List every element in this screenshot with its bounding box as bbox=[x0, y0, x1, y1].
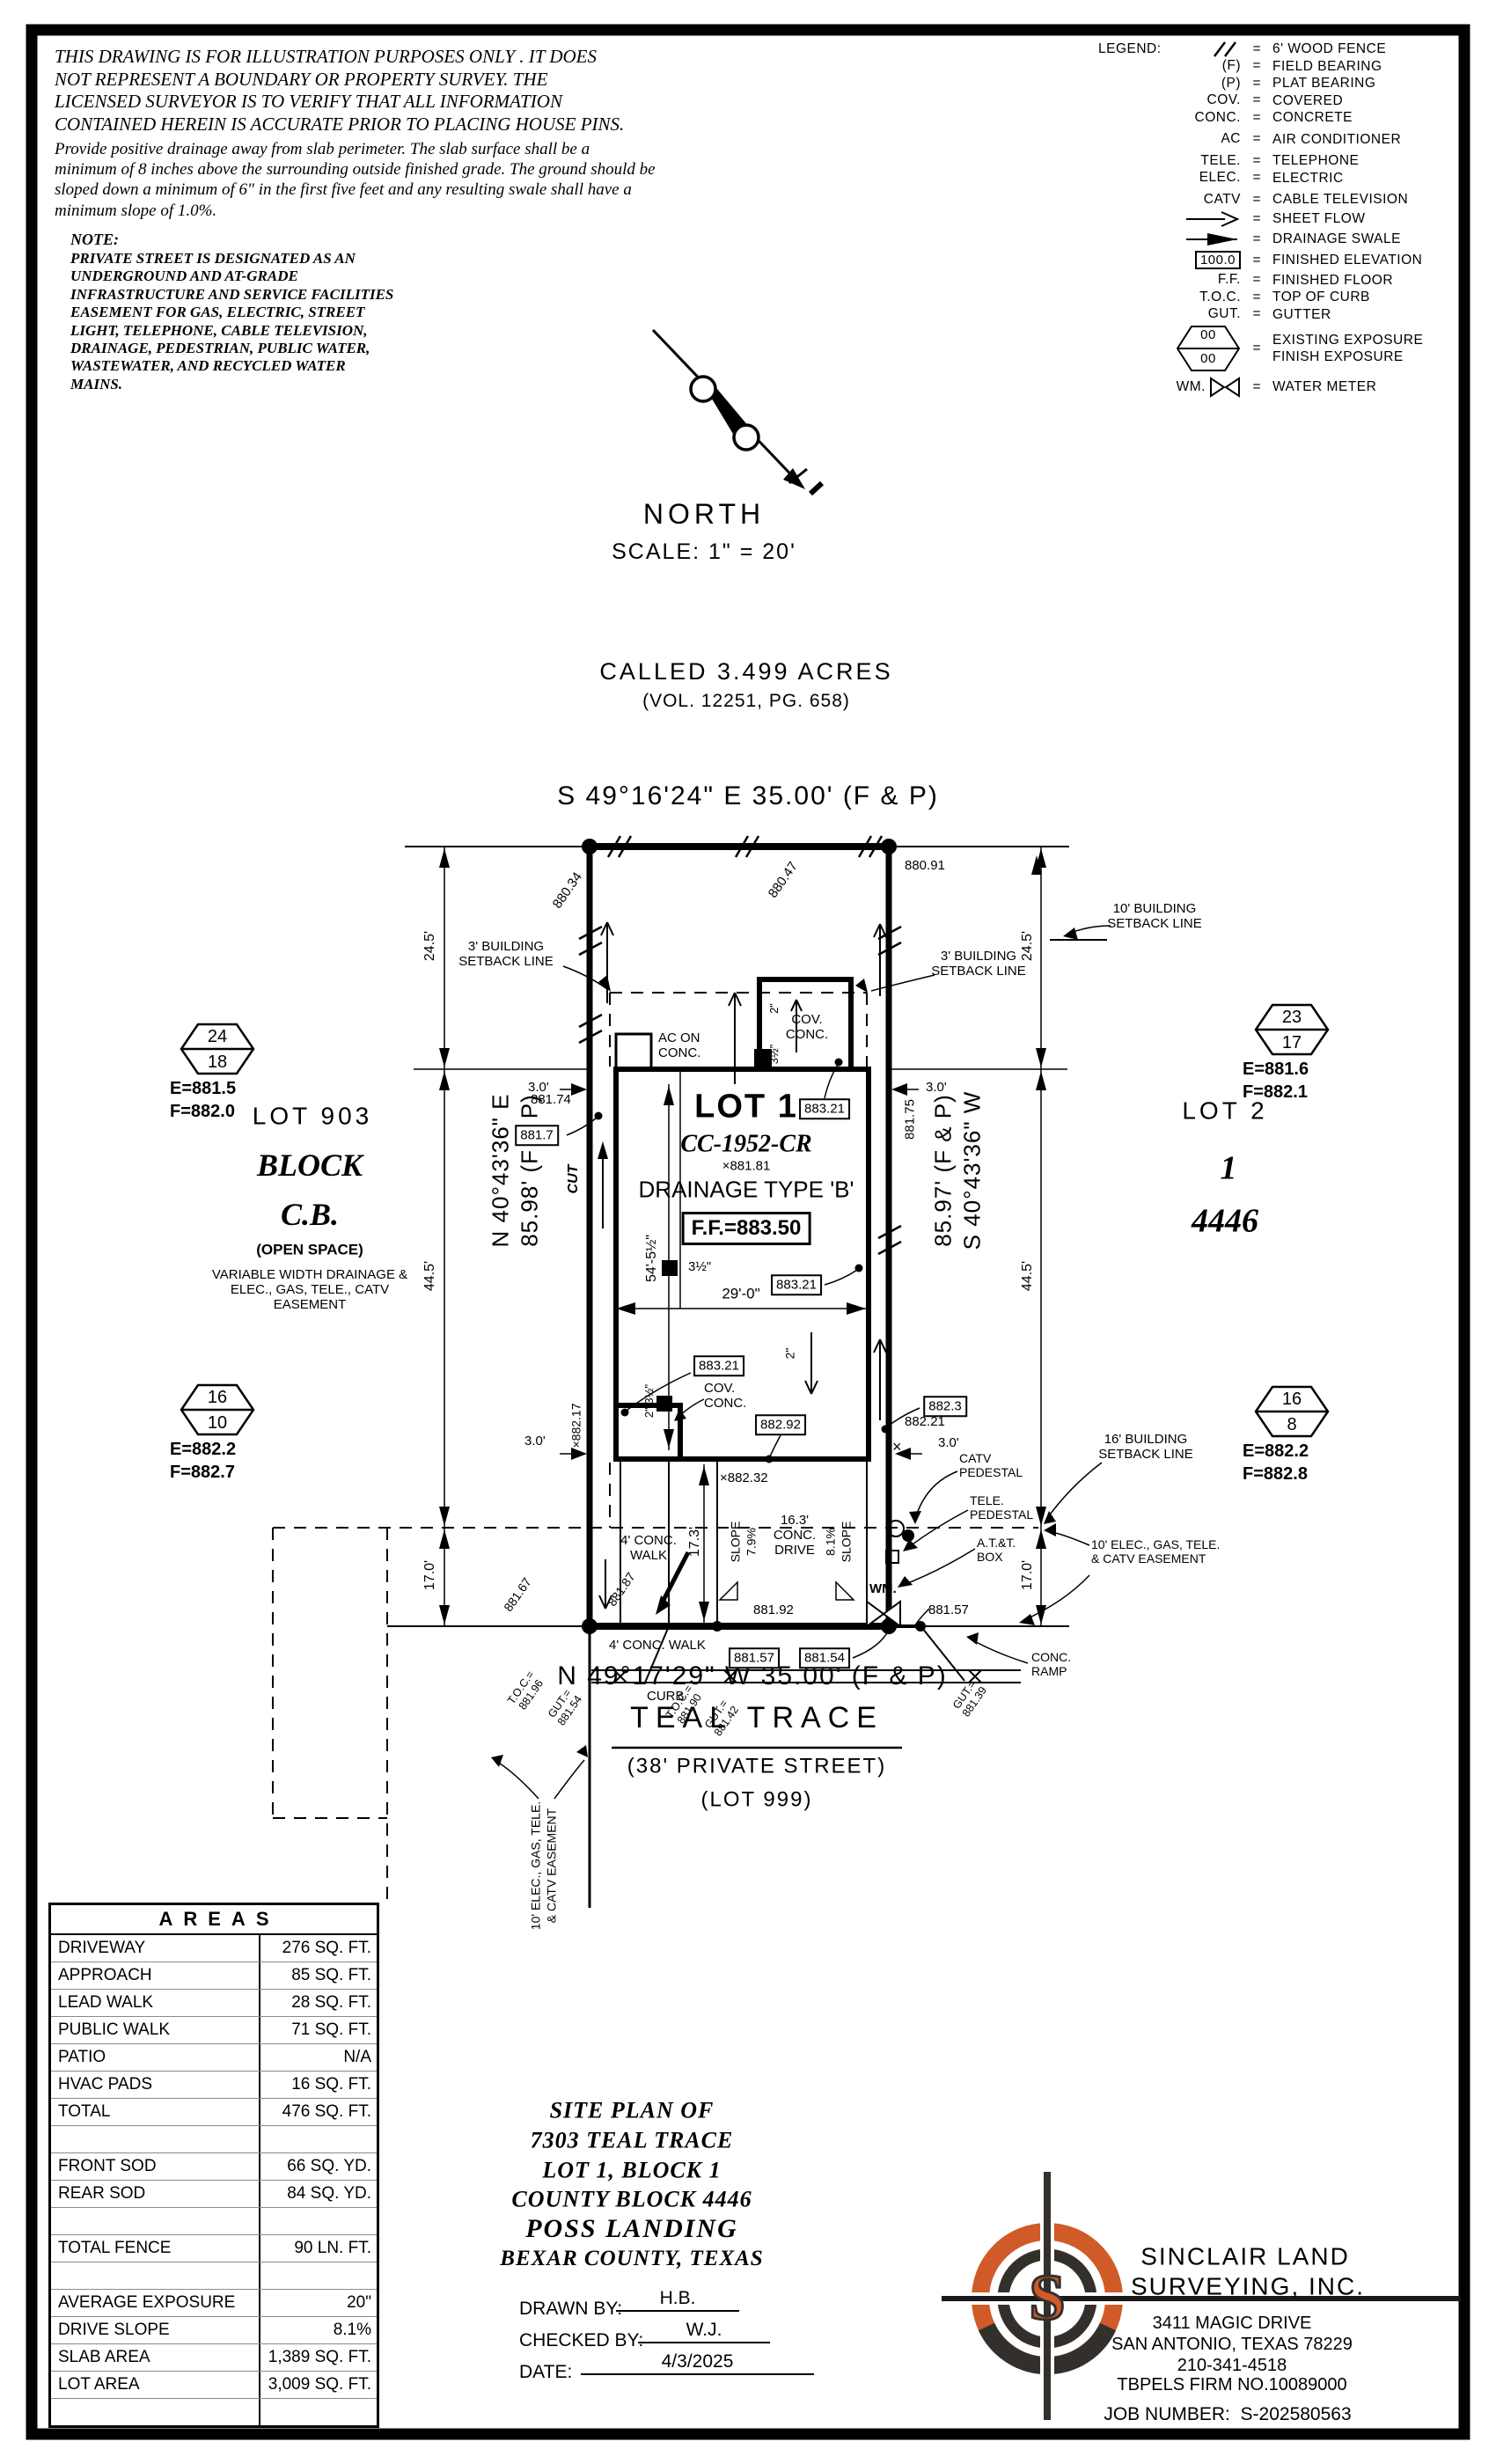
legend-sym: (P) bbox=[1098, 76, 1241, 92]
elev-881-92: 881.92 bbox=[753, 1603, 794, 1618]
legend-desc: ELECTRIC bbox=[1272, 170, 1471, 187]
area-label: HVAC PADS bbox=[51, 2072, 259, 2098]
north-arrow-icon bbox=[653, 330, 822, 494]
setback-10ft-label: 10' BUILDING SETBACK LINE bbox=[1107, 902, 1202, 932]
area-label bbox=[51, 2262, 259, 2289]
marker-nw-e: E=881.5 bbox=[170, 1079, 236, 1098]
dim-24-5-left: 24.5' bbox=[422, 931, 439, 961]
x-spot-mark: × bbox=[892, 1438, 902, 1456]
drainage-swale-arrow-icon bbox=[1186, 231, 1241, 248]
exposure-finish-value: 00 bbox=[1176, 351, 1241, 366]
legend-sym: CONC. bbox=[1098, 110, 1241, 126]
bearing-east-angle: S 40°43'36" W bbox=[957, 1091, 986, 1250]
drainage-note-paragraph: Provide positive drainage away from slab… bbox=[55, 139, 656, 221]
legend-row: LEGEND: = 6' WOOD FENCE bbox=[1098, 40, 1471, 58]
bearing-west-distance: 85.98' (F & P) bbox=[515, 1094, 544, 1248]
elev-881-57-right: 881.57 bbox=[928, 1603, 969, 1618]
bearing-east-line: 85.97' (F & P)S 40°43'36" W bbox=[929, 1091, 986, 1250]
conc-ramp-label: CONC. RAMP bbox=[1031, 1651, 1071, 1678]
area-value: 71 SQ. FT. bbox=[259, 2017, 377, 2043]
table-row: HVAC PADS 16 SQ. FT. bbox=[51, 2071, 377, 2098]
area-label: FRONT SOD bbox=[51, 2153, 259, 2180]
legend-desc: FINISHED FLOOR bbox=[1272, 272, 1471, 289]
job-number: JOB NUMBER: S-202580563 bbox=[1104, 2404, 1351, 2425]
areas-table: AREAS DRIVEWAY 276 SQ. FT. APPROACH 85 S… bbox=[48, 1903, 379, 2428]
area-label: SLAB AREA bbox=[51, 2344, 259, 2371]
scale-label: SCALE: 1" = 20' bbox=[612, 539, 796, 564]
area-value bbox=[259, 2399, 377, 2425]
area-label: DRIVE SLOPE bbox=[51, 2317, 259, 2343]
finished-elevation-box-icon: 100.0 bbox=[1195, 251, 1241, 269]
area-label: DRIVEWAY bbox=[51, 1935, 259, 1962]
bearing-east-distance: 85.97' (F & P) bbox=[929, 1091, 958, 1250]
legend-eq: = bbox=[1241, 92, 1272, 108]
firm-phone: 210-341-4518 bbox=[1177, 2356, 1287, 2375]
areas-table-title: AREAS bbox=[51, 1905, 377, 1935]
marker-sw-e: E=882.2 bbox=[170, 1440, 236, 1459]
lot-1-label: LOT 1 bbox=[694, 1089, 798, 1126]
table-row bbox=[51, 2262, 377, 2289]
legend-eq: = bbox=[1241, 58, 1272, 74]
setback-3ft-left-label: 3' BUILD​ING SETBACK LINE bbox=[458, 940, 554, 970]
wood-fence-icon bbox=[1206, 40, 1241, 58]
title-line-3: LOT 1, BLOCK 1 bbox=[542, 2157, 721, 2182]
easement-bottom-label: 10' ELEC., GAS, TELE. & CATV EASEMENT bbox=[529, 1801, 560, 1930]
elev-box-883-21-a: 883.21 bbox=[799, 1098, 850, 1119]
setback-3ft-right-label: 3' BUILDING SETBACK LINE bbox=[931, 950, 1026, 979]
marker-ne-finish: 17 bbox=[1282, 1033, 1302, 1052]
area-label bbox=[51, 2399, 259, 2425]
legend-desc: EXISTING EXPOSURE FINISH EXPOSURE bbox=[1272, 332, 1471, 366]
elev-881-75: 881.75 bbox=[903, 1099, 920, 1140]
table-row bbox=[51, 2207, 377, 2234]
bearing-north-line: S 49°16'24" E 35.00' (F & P) bbox=[557, 781, 939, 811]
elev-881-74: 881.74 bbox=[531, 1093, 571, 1108]
area-value: 16 SQ. FT. bbox=[259, 2072, 377, 2098]
covered-concrete-bottom-label: COV. CONC. bbox=[704, 1382, 746, 1412]
table-row: PUBLIC WALK 71 SQ. FT. bbox=[51, 2016, 377, 2043]
covered-concrete-top-label: COV. CONC. bbox=[786, 1013, 828, 1043]
slope-left-label: SLOPE 7.9% bbox=[729, 1522, 759, 1563]
legend-eq: = bbox=[1241, 379, 1272, 395]
att-box-label: A.T.&T. BOX bbox=[977, 1536, 1016, 1564]
disclaimer-paragraph: THIS DRAWING IS FOR ILLUSTRATION PURPOSE… bbox=[55, 46, 624, 136]
area-value: 28 SQ. FT. bbox=[259, 1990, 377, 2016]
title-line-1: SITE PLAN OF bbox=[550, 2097, 715, 2123]
dim-44-5-right: 44.5' bbox=[1019, 1261, 1037, 1291]
firm-name-line-1: SINCLAIR LAND bbox=[1140, 2242, 1350, 2270]
area-value: N/A bbox=[259, 2044, 377, 2071]
firm-address-line-2: SAN ANTONIO, TEXAS 78229 bbox=[1111, 2335, 1353, 2354]
title-line-2: 7303 TEAL TRACE bbox=[531, 2127, 734, 2152]
dim-17-0-right: 17.0' bbox=[1019, 1560, 1037, 1590]
table-row: FRONT SOD 66 SQ. YD. bbox=[51, 2152, 377, 2180]
area-value: 8.1% bbox=[259, 2317, 377, 2343]
legend-eq: = bbox=[1241, 192, 1272, 208]
flow-arrows bbox=[599, 922, 886, 1609]
legend-sym: WM. bbox=[1177, 379, 1206, 395]
dim-2in-mid: 2" bbox=[782, 1348, 798, 1360]
legend-eq: = bbox=[1241, 170, 1272, 186]
subdivision-name: POSS LANDING bbox=[525, 2214, 738, 2244]
west-lot-label: LOT 903 bbox=[253, 1102, 372, 1129]
slope-right-label: 8.1% SLOPE bbox=[824, 1522, 854, 1563]
private-street-note: PRIVATE STREET IS DESIGNATED AS AN UNDER… bbox=[70, 250, 393, 393]
spot-elev-882-17: ×882.17 bbox=[568, 1404, 584, 1448]
legend-sym: TELE. bbox=[1098, 153, 1241, 169]
spot-elev-881-81: ×881.81 bbox=[722, 1160, 771, 1175]
legend-desc: 6' WOOD FENCE bbox=[1272, 40, 1471, 57]
west-block-cb-label: C.B. bbox=[281, 1197, 339, 1232]
plan-number-label: CC-1952-CR bbox=[680, 1130, 811, 1157]
cut-label: CUT bbox=[565, 1165, 583, 1194]
logo-letter: S bbox=[1029, 2262, 1065, 2336]
area-value bbox=[259, 2208, 377, 2234]
finished-floor-label: F.F.=883.50 bbox=[682, 1212, 811, 1245]
date-label: DATE: bbox=[519, 2362, 572, 2383]
legend-sym: F.F. bbox=[1098, 272, 1241, 288]
area-label: LOT AREA bbox=[51, 2372, 259, 2398]
bearing-west-angle: N 40°43'36" E bbox=[487, 1094, 516, 1248]
elev-box-881-57: 881.57 bbox=[729, 1647, 780, 1668]
dim-3-0-ne: 3.0' bbox=[926, 1081, 947, 1096]
east-block-number: 1 bbox=[1221, 1150, 1237, 1188]
legend-sym: COV. bbox=[1098, 92, 1241, 108]
legend-eq: = bbox=[1241, 253, 1272, 268]
date-value: 4/3/2025 bbox=[581, 2351, 814, 2375]
table-row: DRIVE SLOPE 8.1% bbox=[51, 2316, 377, 2343]
west-easement-label: VARIABLE WIDTH DRAINAGE & ELEC., GAS, TE… bbox=[212, 1268, 407, 1312]
water-meter-bowtie-icon bbox=[1209, 377, 1241, 398]
dim-17-0-left: 17.0' bbox=[422, 1560, 439, 1590]
marker-se-finish: 8 bbox=[1287, 1415, 1296, 1434]
east-county-block: 4446 bbox=[1192, 1203, 1258, 1241]
elev-880-91: 880.91 bbox=[905, 859, 945, 874]
area-label: REAR SOD bbox=[51, 2181, 259, 2207]
legend-desc: AIR CONDITIONER bbox=[1272, 131, 1471, 148]
area-value: 85 SQ. FT. bbox=[259, 1962, 377, 1989]
dim-44-5-left: 44.5' bbox=[422, 1261, 439, 1291]
checked-by-value: W.J. bbox=[638, 2320, 770, 2343]
tele-pedestal-label: TELE. PEDESTAL bbox=[970, 1494, 1033, 1522]
legend-desc: DRAINAGE SWALE bbox=[1272, 231, 1471, 247]
exposure-hexagon-icon: 00 00 bbox=[1176, 325, 1241, 372]
county-state: BEXAR COUNTY, TEXAS bbox=[500, 2247, 763, 2271]
elev-box-883-21-c: 883.21 bbox=[693, 1355, 744, 1376]
area-label: PUBLIC WALK bbox=[51, 2017, 259, 2043]
area-label: AVERAGE EXPOSURE bbox=[51, 2290, 259, 2316]
area-label: APPROACH bbox=[51, 1962, 259, 1989]
legend-desc: TOP OF CURB bbox=[1272, 289, 1471, 305]
area-value: 276 SQ. FT. bbox=[259, 1935, 377, 1962]
table-row: APPROACH 85 SQ. FT. bbox=[51, 1962, 377, 1989]
legend-sym: ELEC. bbox=[1098, 170, 1241, 186]
lead-walk-label: 4' CONC. WALK bbox=[620, 1534, 677, 1564]
legend-eq: = bbox=[1241, 131, 1272, 147]
street-type: (38' PRIVATE STREET) bbox=[627, 1756, 886, 1779]
area-label: PATIO bbox=[51, 2044, 259, 2071]
spot-elev-882-32: ×882.32 bbox=[720, 1471, 768, 1486]
street-name: TEAL TRACE bbox=[630, 1701, 884, 1734]
marker-sw-existing: 16 bbox=[208, 1388, 227, 1407]
sheet-flow-arrow-icon bbox=[1186, 209, 1241, 229]
marker-se-f: F=882.8 bbox=[1243, 1464, 1308, 1484]
setback-16ft-label: 16' BUILDING SETBACK LINE bbox=[1098, 1433, 1193, 1463]
area-value: 90 LN. FT. bbox=[259, 2235, 377, 2262]
area-value: 66 SQ. YD. bbox=[259, 2153, 377, 2180]
area-label: TOTAL bbox=[51, 2099, 259, 2125]
flow-arrowhead bbox=[598, 1141, 608, 1159]
table-row: PATIO N/A bbox=[51, 2043, 377, 2071]
legend-sym: AC bbox=[1098, 131, 1241, 147]
drawn-by-label: DRAWN BY: bbox=[519, 2299, 622, 2320]
dim-3-0-sw: 3.0' bbox=[524, 1434, 546, 1449]
legend-eq: = bbox=[1241, 290, 1272, 305]
legend-eq: = bbox=[1241, 211, 1272, 227]
areas-table-body: DRIVEWAY 276 SQ. FT. APPROACH 85 SQ. FT.… bbox=[51, 1935, 377, 2425]
area-label bbox=[51, 2126, 259, 2152]
elev-box-881-54: 881.54 bbox=[799, 1647, 850, 1668]
open-space-label: (OPEN SPACE) bbox=[256, 1241, 363, 1258]
area-value bbox=[259, 2126, 377, 2152]
north-label: NORTH bbox=[643, 499, 765, 531]
water-meter-label: WM. bbox=[869, 1582, 897, 1597]
legend-eq: = bbox=[1241, 110, 1272, 126]
easement-right-label: 10' ELEC., GAS, TELE. & CATV EASEMENT bbox=[1091, 1538, 1220, 1566]
elev-box-881-7: 881.7 bbox=[515, 1125, 559, 1146]
legend-desc: FIELD BEARING bbox=[1272, 58, 1471, 75]
dim-17-3: 17.3' bbox=[686, 1527, 704, 1557]
legend-eq: = bbox=[1241, 272, 1272, 288]
parent-tract-volume: (VOL. 12251, PG. 658) bbox=[642, 691, 850, 712]
area-label bbox=[51, 2208, 259, 2234]
table-row: SLAB AREA 1,389 SQ. FT. bbox=[51, 2343, 377, 2371]
table-row: REAR SOD 84 SQ. YD. bbox=[51, 2180, 377, 2207]
dim-2in-porch: 2" bbox=[767, 1003, 781, 1014]
legend-sym: GUT. bbox=[1098, 306, 1241, 322]
area-value: 1,389 SQ. FT. bbox=[259, 2344, 377, 2371]
dim-54-5: 54'-5½" bbox=[643, 1235, 661, 1282]
west-block-label: BLOCK bbox=[257, 1148, 363, 1183]
table-row: LOT AREA 3,009 SQ. FT. bbox=[51, 2371, 377, 2398]
table-row: AVERAGE EXPOSURE 20" bbox=[51, 2289, 377, 2316]
table-row: TOTAL 476 SQ. FT. bbox=[51, 2098, 377, 2125]
marker-ne-e: E=881.6 bbox=[1243, 1060, 1309, 1079]
dim-2in-3h-sw: 2" 3½" bbox=[642, 1384, 656, 1418]
dim-3h-porch: 3½" bbox=[767, 1045, 781, 1065]
catv-pedestal-label: CATV PEDESTAL bbox=[959, 1452, 1023, 1479]
firm-name-line-2: SURVEYING, INC. bbox=[1131, 2272, 1365, 2299]
marker-sw-finish: 10 bbox=[208, 1413, 227, 1433]
legend-eq: = bbox=[1241, 76, 1272, 92]
legend-desc: TELEPHONE bbox=[1272, 152, 1471, 169]
table-row: LEAD WALK 28 SQ. FT. bbox=[51, 1989, 377, 2016]
dim-29-0: 29'-0" bbox=[722, 1285, 759, 1302]
legend-desc: GUTTER bbox=[1272, 306, 1471, 323]
bearing-west-line: N 40°43'36" E85.98' (F & P) bbox=[487, 1094, 544, 1248]
legend-desc: CABLE TELEVISION bbox=[1272, 191, 1471, 208]
legend-eq: = bbox=[1241, 153, 1272, 169]
legend-desc: PLAT BEARING bbox=[1272, 75, 1471, 92]
table-row bbox=[51, 2398, 377, 2425]
legend-desc: SHEET FLOW bbox=[1272, 210, 1471, 227]
table-row bbox=[51, 2125, 377, 2152]
area-value: 84 SQ. YD. bbox=[259, 2181, 377, 2207]
marker-ne-f: F=882.1 bbox=[1243, 1082, 1308, 1102]
legend-eq: = bbox=[1241, 341, 1272, 356]
table-row: TOTAL FENCE 90 LN. FT. bbox=[51, 2234, 377, 2262]
area-value bbox=[259, 2262, 377, 2289]
legend-title: LEGEND: bbox=[1098, 41, 1162, 57]
site-plan-page: THIS DRAWING IS FOR ILLUSTRATION PURPOSE… bbox=[0, 0, 1496, 2464]
marker-sw-f: F=882.7 bbox=[170, 1463, 235, 1482]
firm-tbpels: TBPELS FIRM NO.10089000 bbox=[1117, 2375, 1346, 2394]
title-line-4: COUNTY BLOCK 4446 bbox=[511, 2186, 752, 2211]
street-lot: (LOT 999) bbox=[701, 1789, 813, 1813]
area-value: 20" bbox=[259, 2290, 377, 2316]
legend-desc: WATER METER bbox=[1272, 378, 1471, 395]
legend-eq: = bbox=[1241, 231, 1272, 247]
conc-drive-label: 16.3' CONC. DRIVE bbox=[774, 1514, 816, 1558]
elev-882-21: 882.21 bbox=[905, 1415, 945, 1430]
firm-address-line-1: 3411 MAGIC DRIVE bbox=[1153, 2314, 1312, 2333]
legend-desc: COVERED bbox=[1272, 92, 1471, 109]
area-label: LEAD WALK bbox=[51, 1990, 259, 2016]
ac-pad-label: AC ON CONC. bbox=[658, 1031, 700, 1061]
marker-nw-f: F=882.0 bbox=[170, 1102, 235, 1121]
public-walk-label: 4' CONC. WALK bbox=[609, 1639, 706, 1654]
legend-eq: = bbox=[1241, 41, 1272, 57]
area-value: 3,009 SQ. FT. bbox=[259, 2372, 377, 2398]
note-title: NOTE: bbox=[70, 231, 119, 248]
legend-sym: T.O.C. bbox=[1098, 290, 1241, 305]
legend-eq: = bbox=[1241, 306, 1272, 322]
legend-sym: (F) bbox=[1098, 58, 1241, 74]
legend-desc: FINISHED ELEVATION bbox=[1272, 252, 1471, 268]
legend-desc: CONCRETE bbox=[1272, 109, 1471, 126]
marker-ne-existing: 23 bbox=[1282, 1008, 1302, 1027]
marker-se-existing: 16 bbox=[1282, 1390, 1302, 1409]
table-row: DRIVEWAY 276 SQ. FT. bbox=[51, 1935, 377, 1962]
area-label: TOTAL FENCE bbox=[51, 2235, 259, 2262]
marker-nw-finish: 18 bbox=[208, 1052, 227, 1072]
legend: LEGEND: = 6' WOOD FENCE (F)=FIELD BEARIN… bbox=[1098, 40, 1471, 400]
parent-tract-acreage: CALLED 3.499 ACRES bbox=[599, 658, 892, 685]
exposure-existing-value: 00 bbox=[1176, 327, 1241, 342]
legend-sym: CATV bbox=[1098, 192, 1241, 208]
elev-box-883-21-b: 883.21 bbox=[771, 1274, 822, 1295]
dim-3h-mid: 3½" bbox=[688, 1260, 711, 1275]
elev-box-882-92: 882.92 bbox=[755, 1414, 806, 1435]
checked-by-label: CHECKED BY: bbox=[519, 2330, 643, 2351]
dim-3-0-se: 3.0' bbox=[938, 1436, 959, 1451]
marker-se-e: E=882.2 bbox=[1243, 1441, 1309, 1461]
drawn-by-value: H.B. bbox=[616, 2288, 739, 2312]
area-value: 476 SQ. FT. bbox=[259, 2099, 377, 2125]
marker-nw-existing: 24 bbox=[208, 1027, 227, 1046]
drainage-type-label: DRAINAGE TYPE 'B' bbox=[639, 1177, 854, 1202]
